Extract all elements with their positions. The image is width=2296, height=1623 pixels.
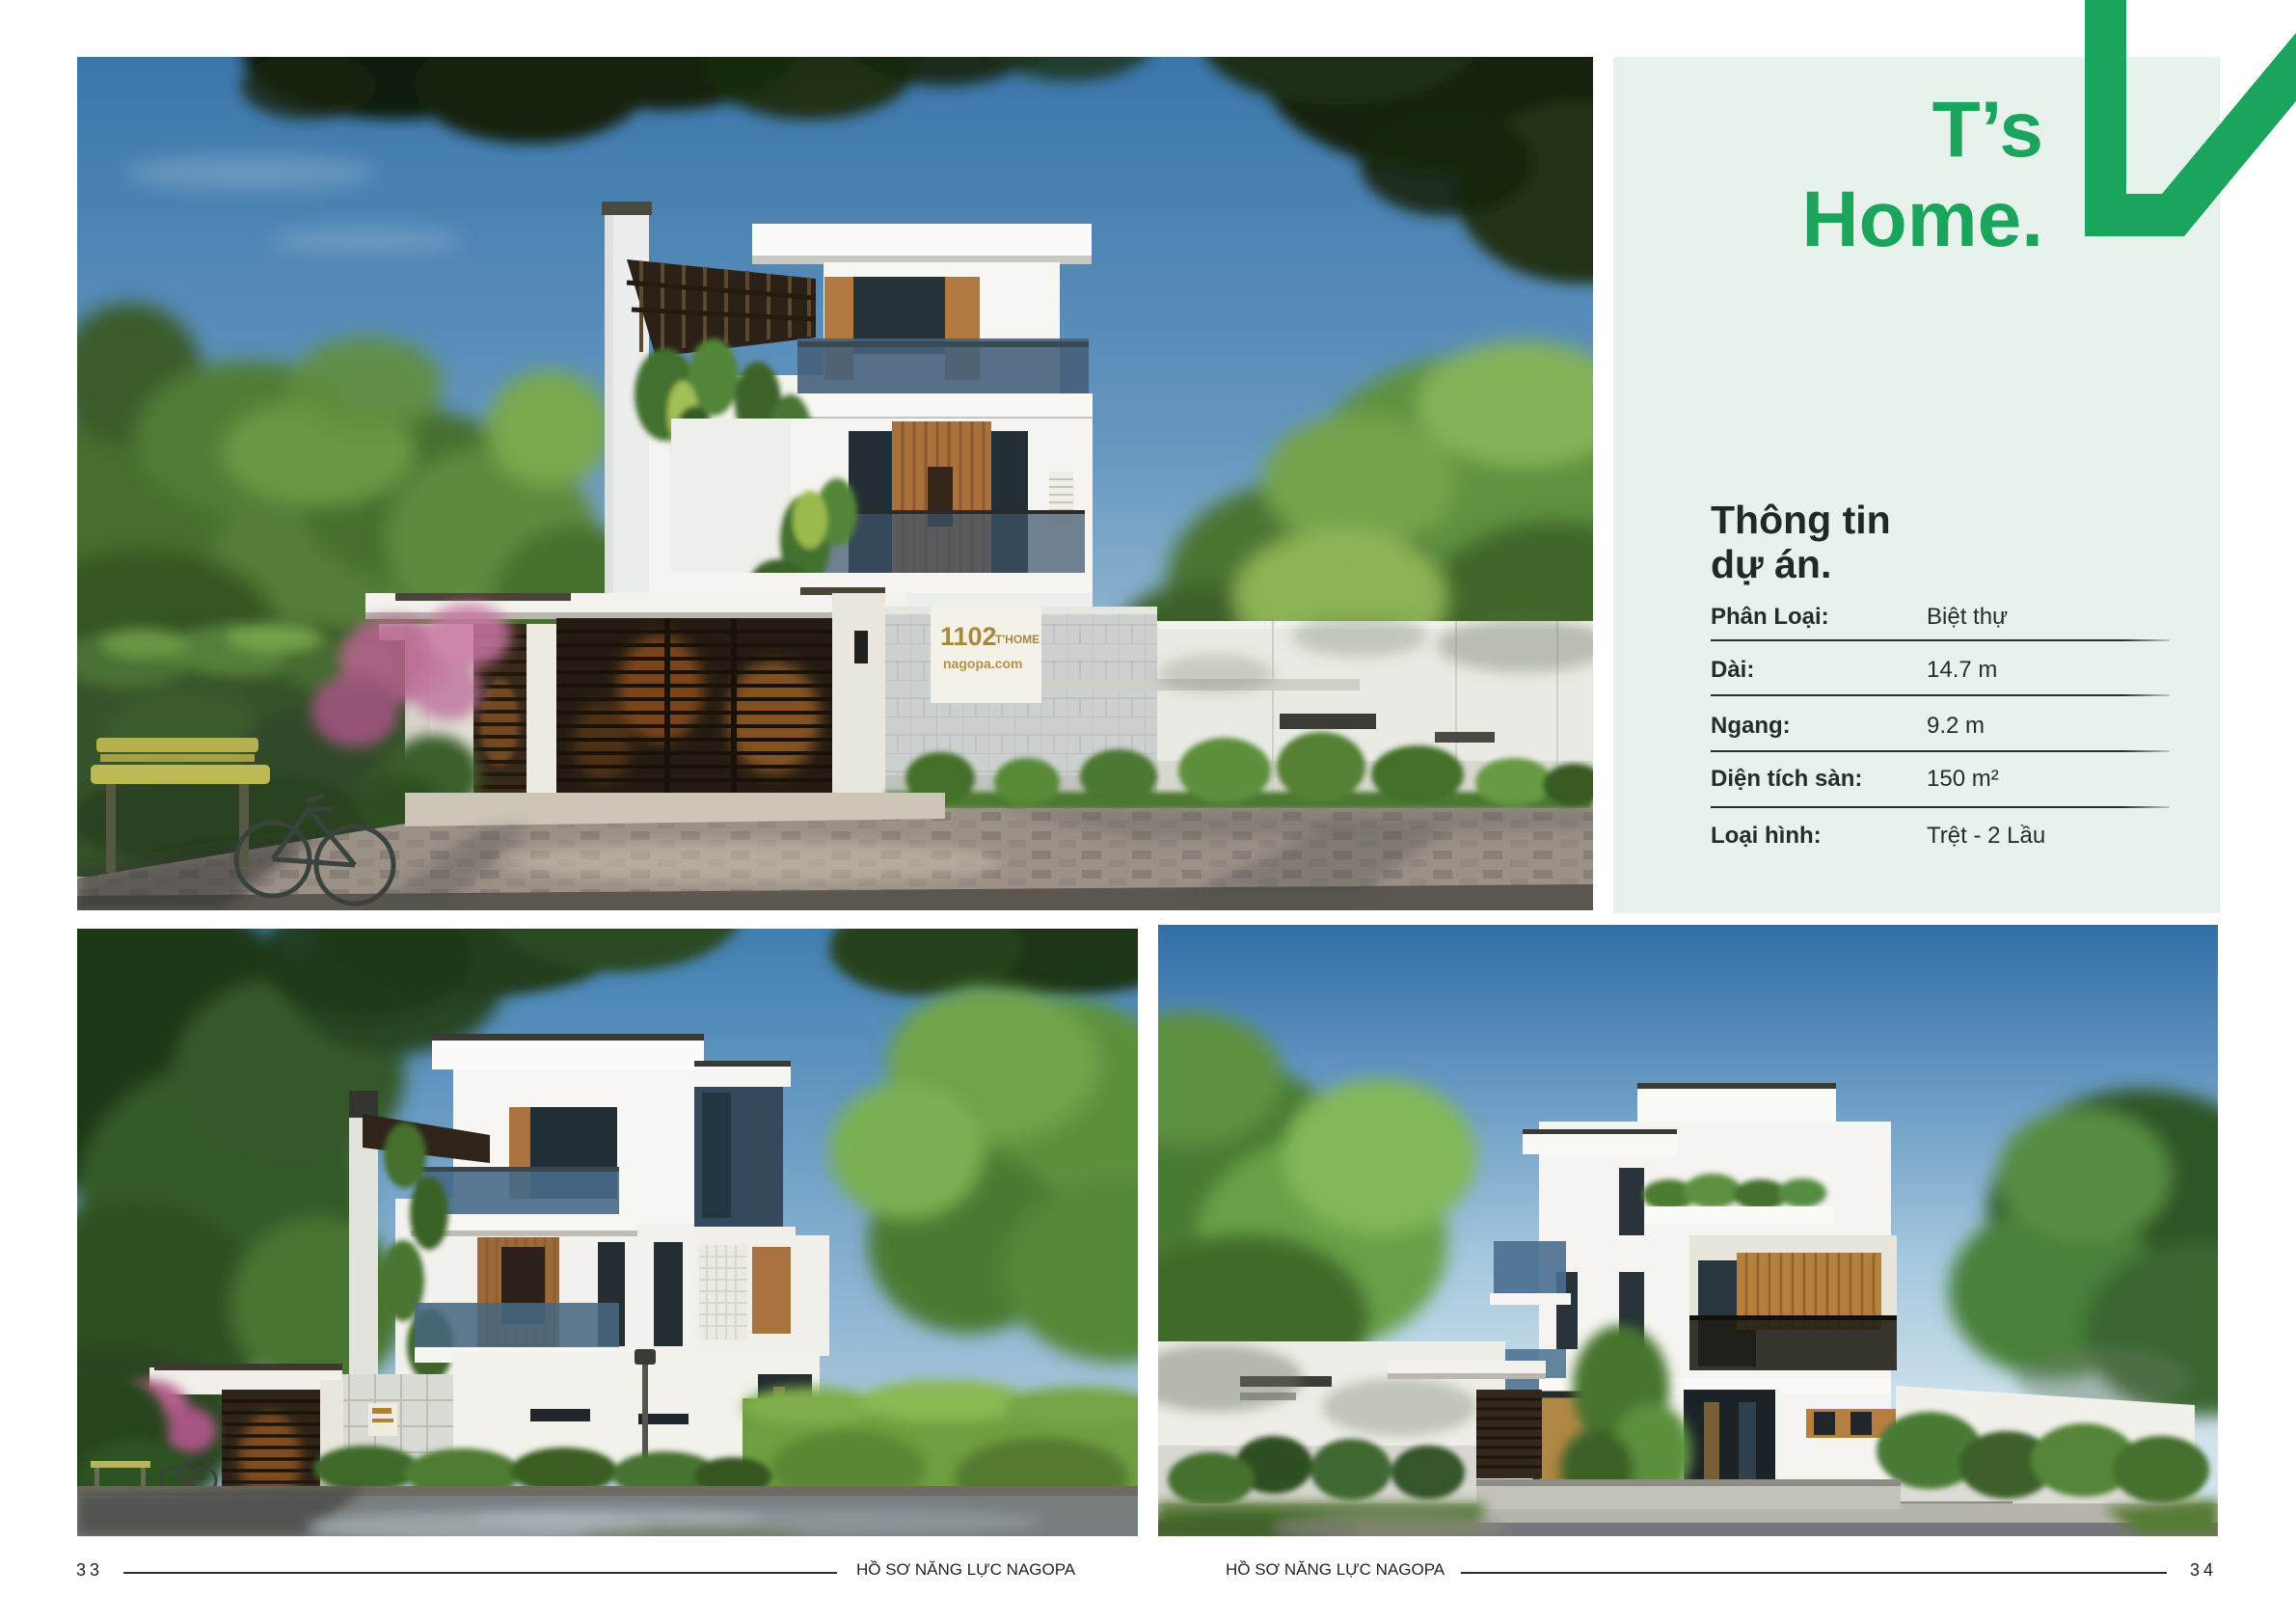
svg-text:1102: 1102 (940, 622, 997, 651)
svg-text:T'HOME: T'HOME (995, 633, 1040, 646)
svg-text:nagopa.com: nagopa.com (943, 656, 1022, 671)
